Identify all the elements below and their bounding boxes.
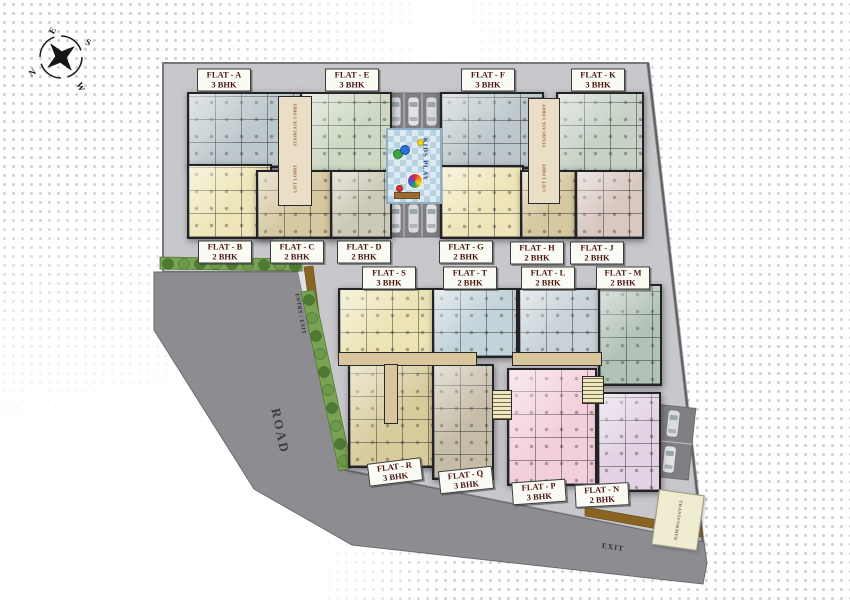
staircase-lobby-label: STAIRCASE LOBBY — [293, 102, 298, 146]
flat-label-e: FLAT - E3 BHK — [325, 68, 379, 91]
kids-play-area: KIDS PLAY — [386, 128, 442, 204]
flat-label-n: FLAT - N2 BHK — [574, 482, 629, 508]
flat-label-d: FLAT - D2 BHK — [337, 240, 391, 263]
car — [426, 204, 437, 233]
flat-label-c: FLAT - C2 BHK — [270, 240, 324, 263]
compass-north: N — [27, 66, 38, 78]
car — [408, 97, 419, 126]
flat-label-j: FLAT - J2 BHK — [570, 241, 624, 264]
flat-label-s: FLAT - S3 BHK — [362, 266, 416, 289]
play-ball-red — [396, 185, 403, 192]
flat-e-plan — [300, 92, 392, 174]
flat-label-h: FLAT - H2 BHK — [510, 241, 564, 264]
play-ball-blue — [400, 145, 410, 155]
flat-t-plan — [432, 288, 518, 358]
flat-n-plan — [597, 392, 661, 492]
staircase-block-2 — [582, 376, 604, 404]
flat-label-t: FLAT - T2 BHK — [443, 266, 497, 289]
flat-s-plan — [338, 288, 434, 358]
flat-d-plan — [330, 170, 392, 239]
car — [426, 97, 437, 126]
compass-east: E — [47, 25, 59, 35]
corridor-right — [512, 352, 602, 366]
transformer-label: TRANSFORMER — [673, 499, 684, 540]
play-bench — [394, 192, 420, 199]
flat-label-g: FLAT - G2 BHK — [439, 240, 493, 263]
flat-label-k: FLAT - K3 BHK — [571, 68, 625, 91]
flat-label-m: FLAT - M2 BHK — [596, 266, 650, 289]
staircase-lobby-label: STAIRCASE LOBBY — [542, 103, 547, 147]
lift-lobby-label: LIFT LOBBY — [542, 163, 547, 191]
flat-k-plan — [556, 92, 644, 174]
corridor-vertical — [384, 364, 398, 424]
flat-g-plan — [440, 165, 524, 239]
site-plan: E S W N STAIRCASE LOBBY LIFT LOBBY STAIR… — [0, 0, 850, 600]
corridor-left — [338, 352, 477, 366]
flat-label-b: FLAT - B2 BHK — [198, 240, 252, 263]
flat-j-plan — [575, 170, 644, 239]
flat-label-f: FLAT - F3 BHK — [461, 68, 515, 91]
compass-icon: E S W N — [27, 25, 93, 93]
flat-m-plan — [598, 284, 662, 386]
transformer-yard: TRANSFORMER — [651, 489, 704, 551]
flat-q-plan — [432, 364, 494, 480]
staircase-lift-lobby-left: STAIRCASE LOBBY LIFT LOBBY — [278, 96, 312, 206]
car — [408, 204, 419, 233]
kids-play-label: KIDS PLAY — [422, 138, 429, 182]
flat-label-a: FLAT - A3 BHK — [197, 68, 251, 91]
flat-label-p: FLAT - P3 BHK — [511, 479, 566, 506]
staircase-lift-lobby-right: STAIRCASE LOBBY LIFT LOBBY — [528, 98, 560, 204]
flat-label-l: FLAT - L2 BHK — [521, 266, 575, 289]
lift-lobby-label: LIFT LOBBY — [293, 164, 298, 192]
staircase-block-1 — [492, 390, 512, 420]
compass-south: S — [84, 37, 93, 48]
compass-west: W — [74, 81, 87, 93]
flat-l-plan — [518, 288, 604, 358]
